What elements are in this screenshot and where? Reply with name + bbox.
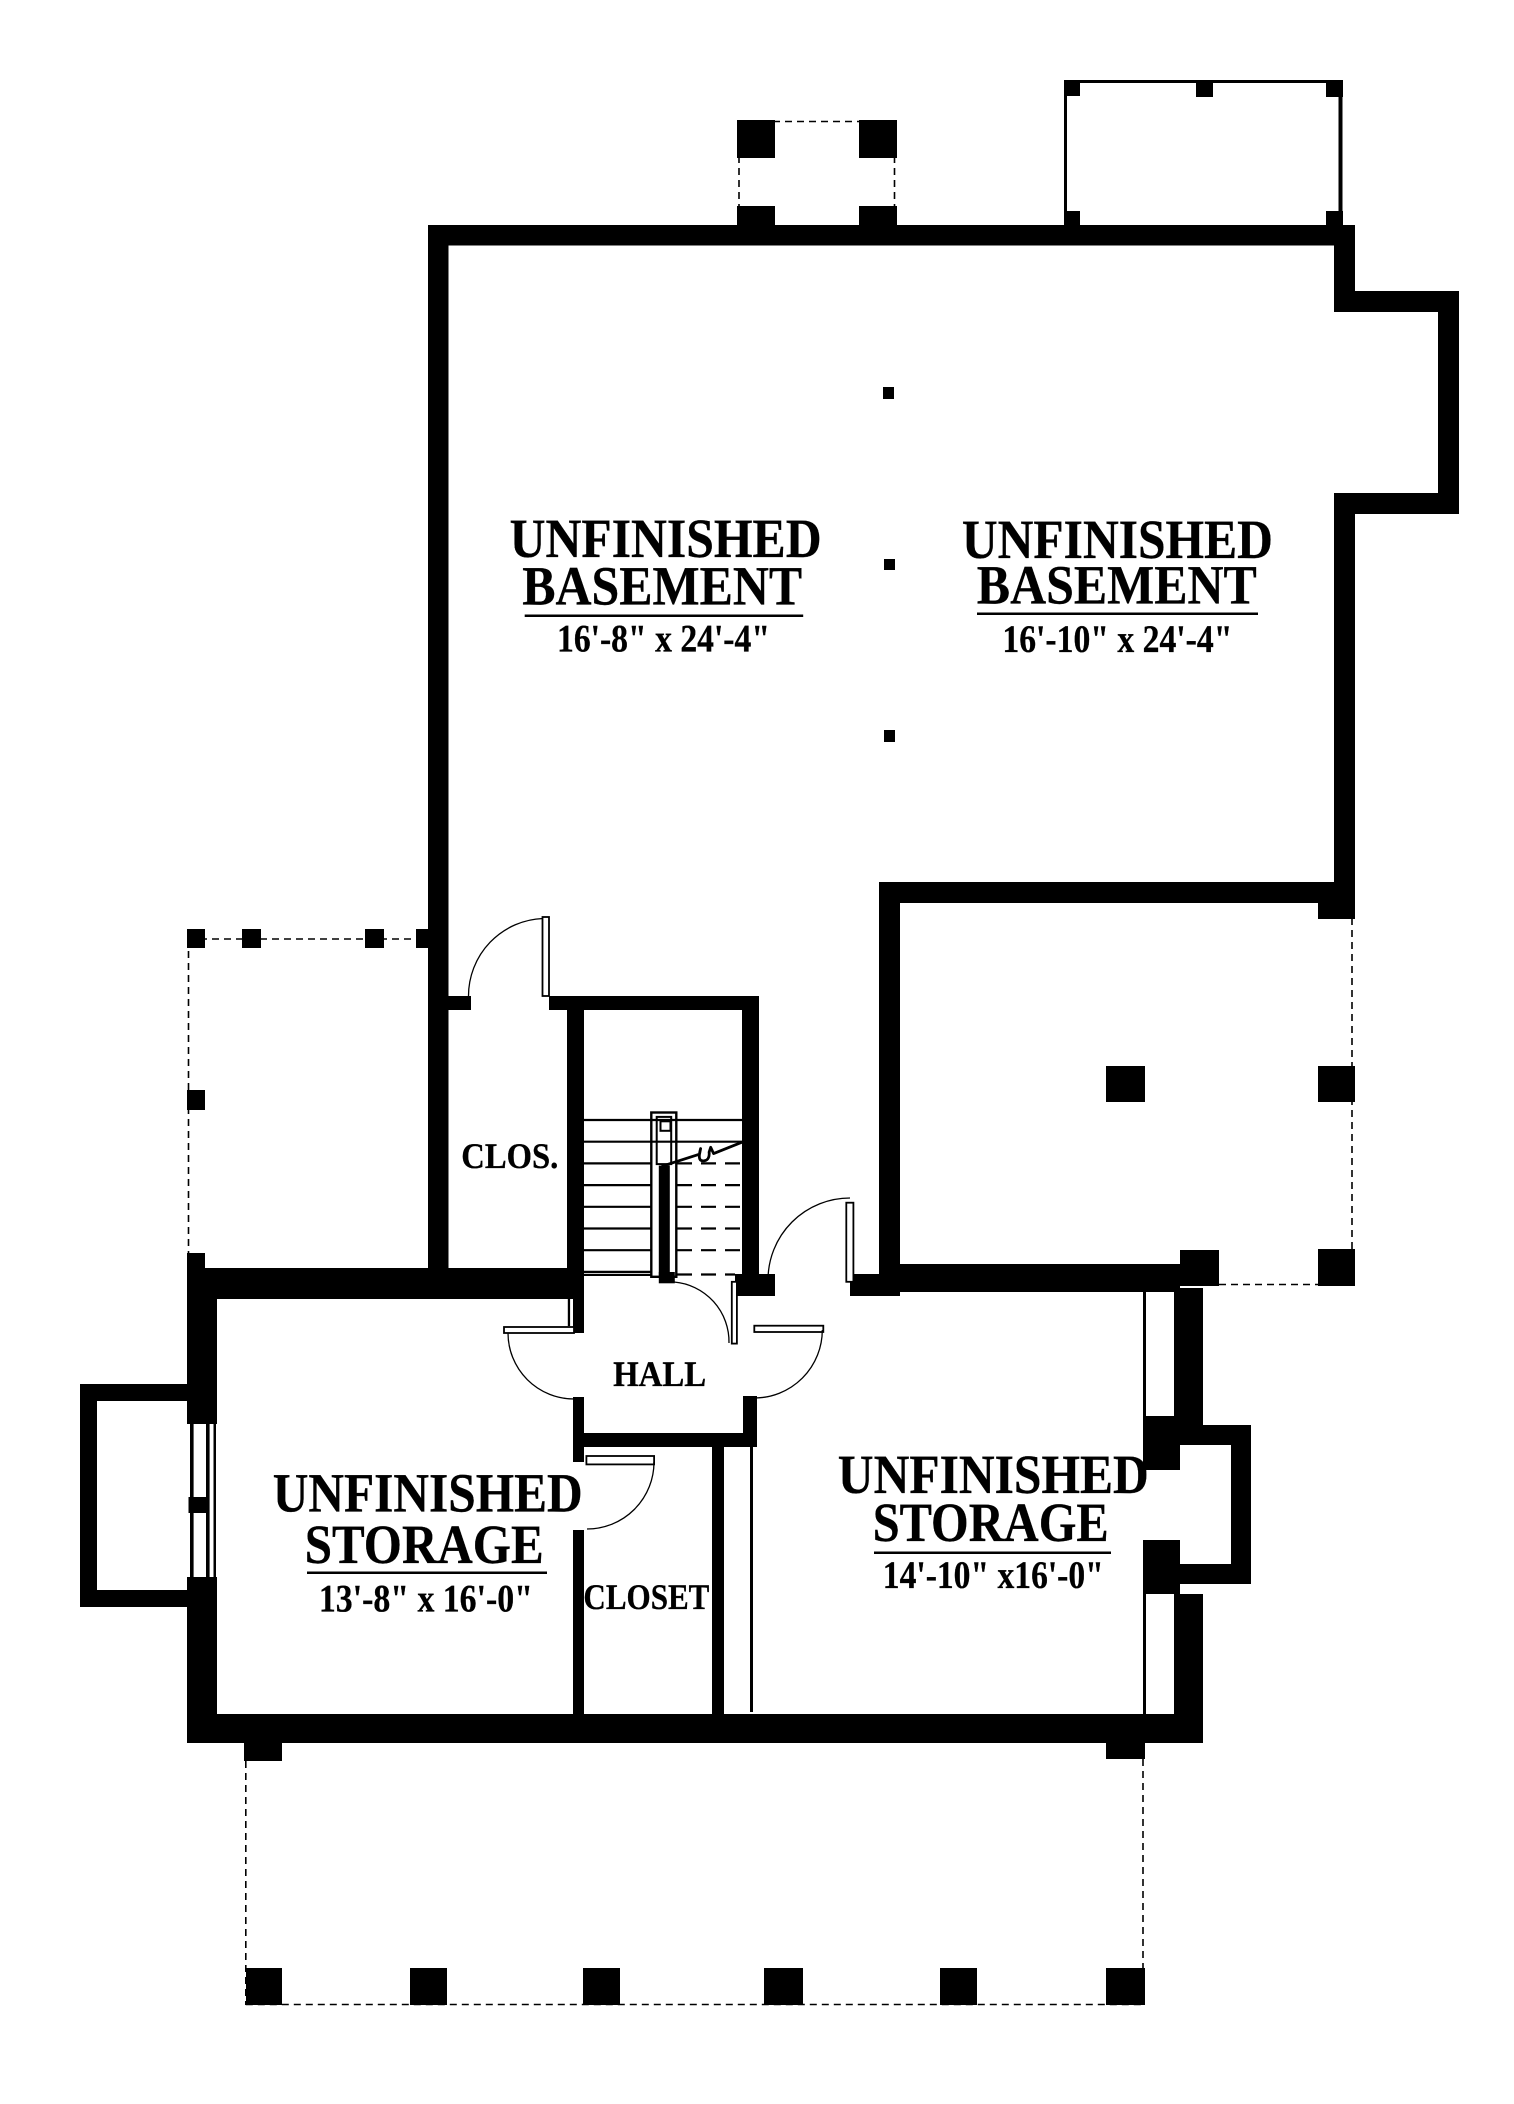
svg-text:STORAGE: STORAGE — [873, 1493, 1109, 1554]
svg-text:13'-8" x 16'-0": 13'-8" x 16'-0" — [319, 1578, 533, 1621]
svg-text:16'-8" x 24'-4": 16'-8" x 24'-4" — [557, 618, 770, 661]
svg-text:STORAGE: STORAGE — [305, 1515, 544, 1576]
svg-text:14'-10" x16'-0": 14'-10" x16'-0" — [883, 1554, 1104, 1597]
svg-text:HALL: HALL — [613, 1354, 706, 1394]
svg-text:BASEMENT: BASEMENT — [977, 556, 1257, 617]
svg-text:16'-10" x 24'-4": 16'-10" x 24'-4" — [1002, 618, 1232, 661]
svg-text:CLOSET: CLOSET — [583, 1577, 709, 1617]
svg-text:CLOS.: CLOS. — [461, 1136, 558, 1176]
svg-text:BASEMENT: BASEMENT — [522, 557, 802, 618]
